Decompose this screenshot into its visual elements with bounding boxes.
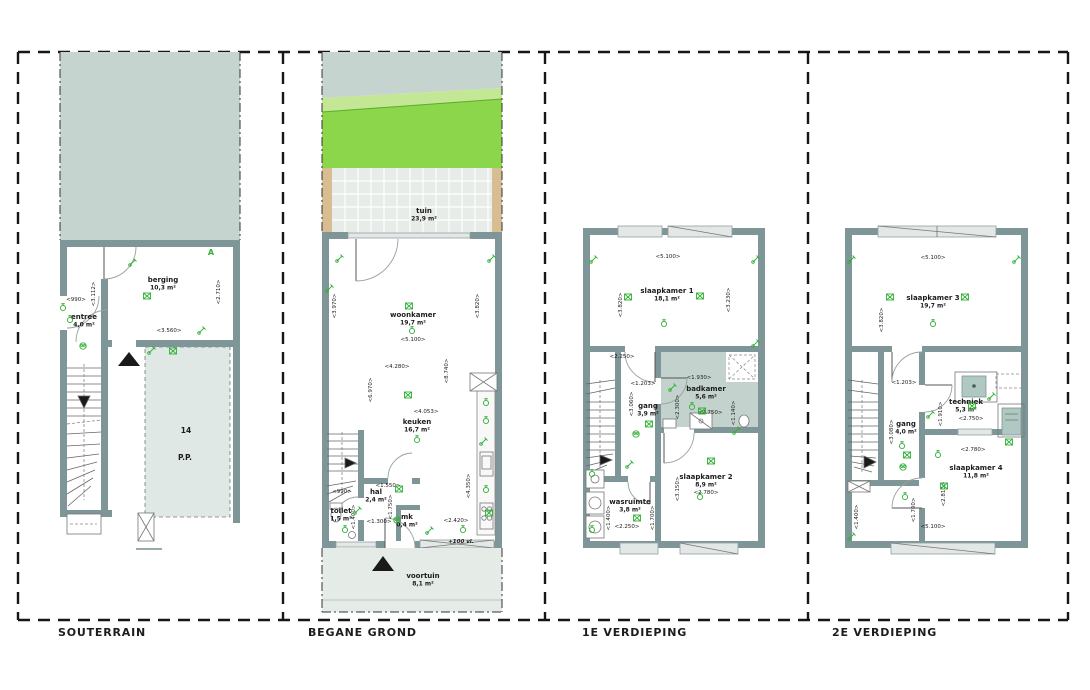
dimension-label: <8.740> xyxy=(444,358,450,383)
floor-title-2e-verdieping: 2E VERDIEPING xyxy=(832,626,937,639)
dimension-label: <3.150> xyxy=(675,476,681,501)
room-name: entree xyxy=(71,313,97,321)
socket-icon xyxy=(414,435,419,443)
dimension-label: <5.100> xyxy=(401,337,426,343)
room-name: mk xyxy=(401,513,413,521)
dimension-label: <4.280> xyxy=(385,364,410,370)
note-label: P.P. xyxy=(178,453,192,462)
room-name: slaapkamer 1 xyxy=(640,287,693,295)
dimension-label: <4.053> xyxy=(414,409,439,415)
room-area: 5,6 m² xyxy=(695,394,717,401)
junction-box-icon xyxy=(406,303,413,309)
floor-plan-sheet: berging10,3 m²entree4,0 m²<990><3.112><2… xyxy=(0,0,1090,690)
junction-box-icon xyxy=(405,392,412,398)
terrace xyxy=(322,168,502,235)
stairs xyxy=(67,364,101,506)
room-area: 23,9 m² xyxy=(411,216,437,223)
dimension-label: <3.820> xyxy=(618,292,624,317)
switch-icon xyxy=(129,259,137,267)
dimension-label: <1.700> xyxy=(911,497,917,522)
dimension-label: <2.300> xyxy=(675,394,681,419)
dimension-label: <2.810> xyxy=(941,481,947,506)
dimension-label: <3.060> xyxy=(629,391,635,416)
thermostat-icon xyxy=(633,431,639,437)
dimension-label: <3.560> xyxy=(157,328,182,334)
room-area: 11,8 m² xyxy=(963,473,989,480)
column xyxy=(136,513,162,550)
dimension-label: <2.780> xyxy=(961,447,986,453)
socket-icon xyxy=(60,303,65,311)
dimension-label: <1.400> xyxy=(351,504,357,529)
ground-area xyxy=(60,52,240,240)
dimension-label: <3.230> xyxy=(726,287,732,312)
room-name: slaapkamer 4 xyxy=(949,464,1002,472)
junction-box-icon xyxy=(144,293,151,299)
floor-title-souterrain: SOUTERRAIN xyxy=(58,626,146,639)
panel-begane-grond: tuin23,9 m²woonkamer19,7 m²keuken16,7 m²… xyxy=(322,52,502,612)
dimension-label: <1.300> xyxy=(367,519,392,525)
dimension-label: <1.750> xyxy=(388,494,394,519)
socket-icon xyxy=(899,441,904,449)
junction-box-icon xyxy=(962,294,969,300)
note-label: 14 xyxy=(181,426,191,435)
kitchen-counter xyxy=(470,373,497,535)
switch-icon xyxy=(488,255,496,263)
dimension-label: <1.400> xyxy=(854,504,860,529)
walls xyxy=(845,226,1028,554)
dimension-label: <3.820> xyxy=(475,293,481,318)
room-name: gang xyxy=(638,402,658,410)
thermostat-icon xyxy=(80,343,86,349)
room-name: hal xyxy=(370,488,382,496)
socket-icon xyxy=(902,492,907,500)
room-name: slaapkamer 2 xyxy=(679,473,732,481)
socket-icon xyxy=(935,450,940,458)
socket-icon xyxy=(342,525,347,533)
room-name: techniek xyxy=(949,398,983,406)
room-name: slaapkamer 3 xyxy=(906,294,959,302)
room-name: voortuin xyxy=(406,572,439,580)
wc xyxy=(739,415,749,427)
socket-icon xyxy=(930,319,935,327)
room-area: 4,0 m² xyxy=(895,429,917,436)
room-area: 8,1 m² xyxy=(412,581,434,588)
panel-1e-verdieping: slaapkamer 118,1 m²badkamer5,6 m²gang3,9… xyxy=(583,226,765,554)
room-name: gang xyxy=(896,420,916,428)
dimension-label: <3.080> xyxy=(889,419,895,444)
entrance-marker xyxy=(118,352,140,366)
junction-box-icon xyxy=(634,515,641,521)
room-area: 19,7 m² xyxy=(920,303,946,310)
junction-box-icon xyxy=(1006,439,1013,445)
fence-right xyxy=(492,168,502,235)
dimension-label: <3.112> xyxy=(91,281,97,306)
dimension-label: <5.100> xyxy=(921,524,946,530)
boiler xyxy=(1002,408,1021,435)
dimension-label: <990> xyxy=(332,489,352,495)
room-area: 2,4 m² xyxy=(365,497,387,504)
dimension-label: <1.140> xyxy=(731,400,737,425)
room-name: woonkamer xyxy=(390,311,436,319)
junction-box-icon xyxy=(708,458,715,464)
room-area: 10,3 m² xyxy=(150,285,176,292)
stairs xyxy=(848,380,878,472)
room-name: tuin xyxy=(416,207,432,215)
junction-box-icon xyxy=(697,293,704,299)
dimension-label: <1.400> xyxy=(606,505,612,530)
fence-left xyxy=(322,168,332,235)
room-area: 8,9 m² xyxy=(695,482,717,489)
socket-icon xyxy=(460,525,465,533)
dimension-label: <3.820> xyxy=(879,307,885,332)
room-area: 16,7 m² xyxy=(404,427,430,434)
room-area: 4,0 m² xyxy=(73,322,95,329)
dimension-label: <1.203> xyxy=(892,380,917,386)
room-area: 18,1 m² xyxy=(654,296,680,303)
dimension-label: <2.250> xyxy=(615,524,640,530)
switch-icon xyxy=(426,527,434,535)
dimension-label: <2.710> xyxy=(216,279,222,304)
dimension-label: <1.700> xyxy=(650,505,656,530)
dimension-label: <2.250> xyxy=(610,354,635,360)
panel-souterrain: berging10,3 m²entree4,0 m²<990><3.112><2… xyxy=(60,52,240,550)
note-label: +100 vl. xyxy=(448,539,474,545)
switch-icon xyxy=(590,256,598,264)
labels-begane-grond: tuin23,9 m²woonkamer19,7 m²keuken16,7 m²… xyxy=(326,207,496,588)
stairs xyxy=(586,380,615,473)
thermostat-icon xyxy=(900,464,906,470)
junction-box-icon xyxy=(625,294,632,300)
room-area: 3,9 m² xyxy=(637,411,659,418)
panel-2e-verdieping: slaapkamer 319,7 m²techniek5,3 m²gang4,0… xyxy=(845,226,1028,554)
floor-plan-drawing: berging10,3 m²entree4,0 m²<990><3.112><2… xyxy=(0,0,1090,690)
room-name: wasruimte xyxy=(609,498,651,506)
dimension-label: <5.100> xyxy=(656,254,681,260)
laundry-fixtures xyxy=(586,470,604,538)
switch-icon xyxy=(336,255,344,263)
dimension-label: <1.910> xyxy=(938,401,944,426)
junction-box-icon xyxy=(904,452,911,458)
switch-icon xyxy=(988,393,996,401)
dimension-label: <5.100> xyxy=(921,255,946,261)
dimension-label: <6.970> xyxy=(368,377,374,402)
room-area: 19,7 m² xyxy=(400,320,426,327)
dimension-label: <2.420> xyxy=(444,518,469,524)
dimension-label: <4.350> xyxy=(466,473,472,498)
duct-box xyxy=(848,481,870,492)
room-name: badkamer xyxy=(686,385,726,393)
room-area: 1,5 m² xyxy=(330,516,352,523)
switch-icon xyxy=(198,327,206,335)
dimension-label: <3.970> xyxy=(332,293,338,318)
dimension-label: <2.750> xyxy=(959,416,984,422)
junction-box-icon xyxy=(646,421,653,427)
floor-title-1e-verdieping: 1E VERDIEPING xyxy=(582,626,687,639)
switch-icon xyxy=(626,461,634,469)
socket-icon xyxy=(409,326,414,334)
labels-2e-verdieping: slaapkamer 319,7 m²techniek5,3 m²gang4,0… xyxy=(848,255,1021,540)
junction-box-icon xyxy=(887,294,894,300)
dimension-label: <990> xyxy=(66,297,86,303)
room-name: berging xyxy=(148,276,179,284)
dimension-label: <1.930> xyxy=(687,375,712,381)
dimension-label: <1.203> xyxy=(631,381,656,387)
room-name: toilet xyxy=(330,507,352,515)
switch-icon xyxy=(1013,256,1021,264)
dimension-label: <2.780> xyxy=(694,490,719,496)
note-label: A xyxy=(208,248,215,257)
floor-title-begane-grond: BEGANE GROND xyxy=(308,626,417,639)
room-name: keuken xyxy=(403,418,431,426)
socket-icon xyxy=(661,319,666,327)
room-area: 3,8 m² xyxy=(619,507,641,514)
